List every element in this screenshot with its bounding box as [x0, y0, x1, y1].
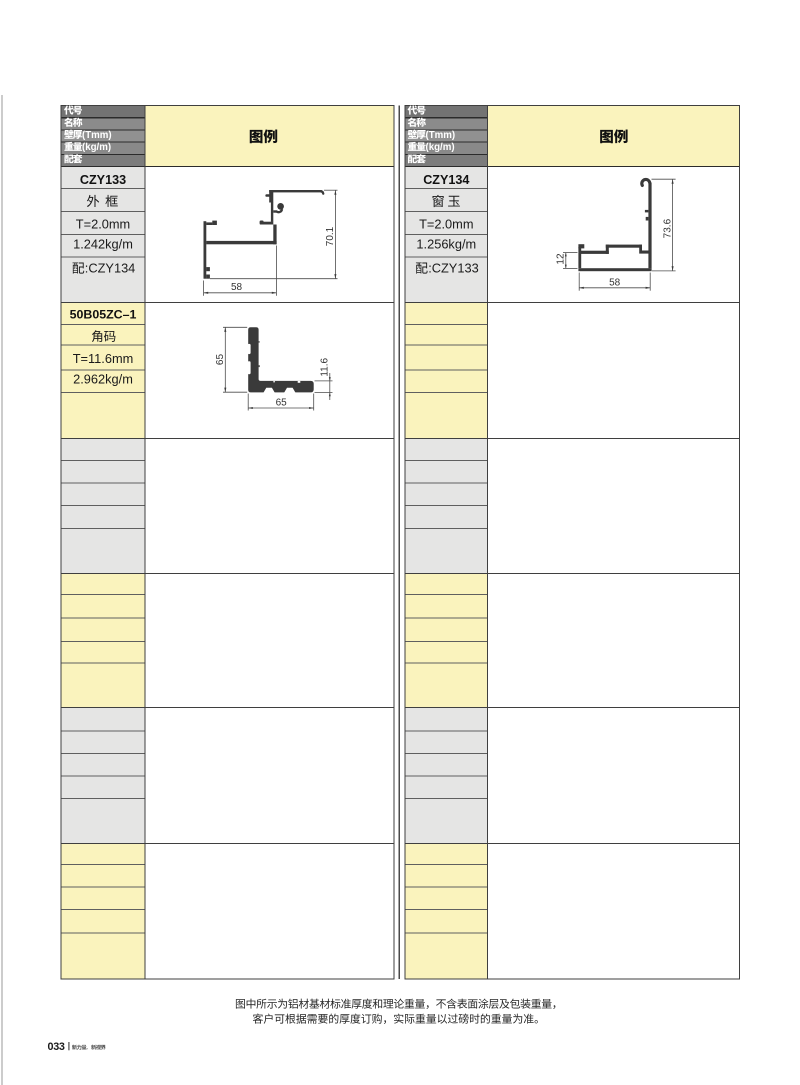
- svg-text:033: 033: [48, 1041, 65, 1053]
- svg-text:1.242kg/m: 1.242kg/m: [73, 237, 133, 252]
- svg-text:65: 65: [215, 354, 226, 366]
- svg-text:CZY134: CZY134: [423, 173, 469, 187]
- svg-text:58: 58: [609, 277, 621, 288]
- svg-text:(kg/m): (kg/m): [82, 142, 111, 153]
- svg-text:(Tmm): (Tmm): [82, 130, 112, 141]
- svg-text:65: 65: [276, 398, 288, 409]
- svg-text:12: 12: [555, 253, 566, 265]
- svg-text::CZY134: :CZY134: [85, 261, 136, 276]
- svg-text::CZY133: :CZY133: [428, 261, 479, 276]
- svg-text:73.6: 73.6: [662, 218, 673, 238]
- svg-text:70.1: 70.1: [325, 226, 336, 246]
- svg-text:CZY133: CZY133: [80, 173, 126, 187]
- svg-text:11.6: 11.6: [319, 358, 330, 377]
- svg-text:1.256kg/m: 1.256kg/m: [416, 237, 476, 252]
- svg-text:(Tmm): (Tmm): [426, 130, 456, 141]
- svg-text:T=2.0mm: T=2.0mm: [76, 217, 130, 232]
- svg-text:T=2.0mm: T=2.0mm: [419, 217, 473, 232]
- svg-text:2.962kg/m: 2.962kg/m: [73, 371, 133, 386]
- svg-text:T=11.6mm: T=11.6mm: [73, 351, 134, 366]
- svg-text:50B05ZC–1: 50B05ZC–1: [70, 307, 137, 321]
- svg-text:(kg/m): (kg/m): [426, 142, 455, 153]
- svg-text:58: 58: [231, 282, 243, 293]
